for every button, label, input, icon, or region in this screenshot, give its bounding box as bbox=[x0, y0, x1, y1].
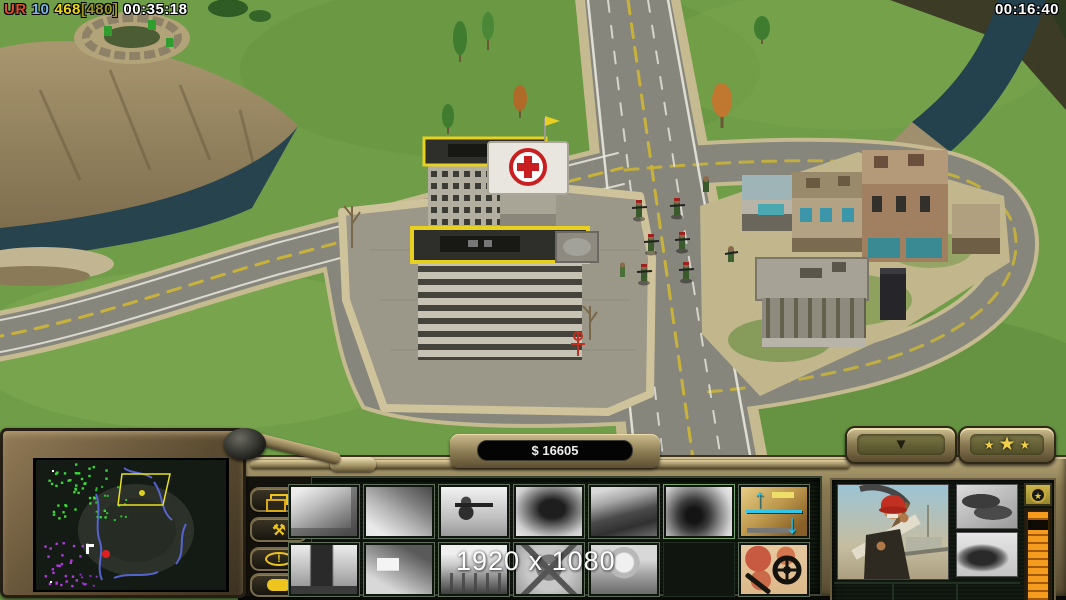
build-cell-explosion[interactable] bbox=[663, 484, 735, 539]
stacked-windows-icon bbox=[270, 494, 288, 505]
veterancy-emblem: ★ bbox=[1024, 483, 1052, 506]
minimap-camera-dot bbox=[139, 490, 145, 496]
crossed-tools-icon: ⚒ bbox=[272, 521, 285, 539]
game-screen: UR10468[480]00:35:18 00:16:40 bbox=[0, 0, 1066, 600]
money-display: $ 16605 bbox=[477, 440, 633, 461]
build-cell-supply-truck[interactable] bbox=[288, 542, 360, 597]
supply-cap: [480] bbox=[81, 1, 119, 18]
bunker-cave-thumbnail bbox=[516, 487, 582, 536]
money-tab: $ 16605 bbox=[450, 434, 660, 468]
supply-truck-thumbnail bbox=[291, 545, 357, 594]
panel-gridline bbox=[834, 582, 1020, 584]
star-icon: ★ bbox=[998, 433, 1015, 456]
hospital-front-tower[interactable] bbox=[412, 228, 598, 360]
star-icon: ★ bbox=[984, 438, 995, 452]
factory-thumbnail bbox=[591, 487, 657, 536]
command-bar: $ 16605 ▼ ★ ★ ★ ⚒ ! ↑ ↓ bbox=[0, 420, 1066, 600]
build-cell-factory[interactable] bbox=[588, 484, 660, 539]
supply-building-thumbnail bbox=[291, 487, 357, 536]
build-cell-map-scan[interactable] bbox=[738, 542, 810, 597]
helipad[interactable] bbox=[488, 142, 568, 235]
panel-gridline bbox=[892, 582, 894, 600]
explosion-smoke-thumbnail bbox=[666, 487, 732, 536]
rank-stars-button[interactable]: ★ ★ ★ bbox=[958, 426, 1056, 464]
civilian-building-far[interactable] bbox=[952, 204, 1000, 254]
match-timer: 00:16:40 bbox=[995, 1, 1059, 18]
build-cell-empty[interactable] bbox=[663, 542, 735, 597]
civilian-building-concrete[interactable] bbox=[756, 258, 868, 347]
up-arrow-icon: ↑ bbox=[753, 485, 767, 512]
construction-yard-thumbnail bbox=[366, 487, 432, 536]
chevron-down-icon: ▼ bbox=[894, 437, 909, 452]
build-cell-supply-building[interactable] bbox=[288, 484, 360, 539]
black-chimney bbox=[880, 268, 906, 320]
game-time: 00:35:18 bbox=[123, 1, 187, 18]
minimap-red-dot bbox=[102, 550, 110, 558]
build-cell-bunker-cave[interactable] bbox=[513, 484, 585, 539]
unit-count: 10 bbox=[32, 1, 50, 18]
supply-current: 468 bbox=[54, 1, 81, 18]
item-shoes[interactable] bbox=[956, 484, 1018, 529]
build-cell-raise-lower[interactable]: ↑ ↓ bbox=[738, 484, 810, 539]
walled-compound-thumbnail bbox=[366, 545, 432, 594]
civilian-building-tan[interactable] bbox=[792, 172, 870, 252]
scan-handle bbox=[745, 572, 772, 594]
resolution-overlay: 1920 x 1080 bbox=[456, 546, 616, 577]
build-cell-compound[interactable] bbox=[363, 542, 435, 597]
build-cell-construction-yard[interactable] bbox=[363, 484, 435, 539]
resource-stats: UR10468[480]00:35:18 bbox=[4, 1, 192, 18]
general-powers-button[interactable]: ▼ bbox=[845, 426, 957, 464]
map-scan-thumbnail bbox=[741, 545, 807, 594]
star-medal-icon: ★ bbox=[1030, 487, 1046, 503]
star-icon: ★ bbox=[1020, 438, 1031, 452]
build-cell-rpg-soldier[interactable] bbox=[438, 484, 510, 539]
raise-lower-building-thumbnail: ↑ ↓ bbox=[741, 487, 807, 536]
experience-bar-gap bbox=[1028, 520, 1048, 530]
faction-tag: UR bbox=[4, 1, 27, 18]
civilian-building-brown[interactable] bbox=[862, 150, 948, 262]
panel-gridline bbox=[956, 582, 958, 600]
minimap-knob bbox=[224, 428, 266, 460]
item-engraving[interactable] bbox=[956, 532, 1018, 577]
unit-portrait-worker[interactable] bbox=[837, 484, 949, 580]
experience-bar bbox=[1024, 508, 1052, 600]
rpg-soldier-thumbnail bbox=[441, 487, 507, 536]
scan-wheel-icon bbox=[769, 553, 805, 589]
selected-unit-panel: ★ bbox=[830, 478, 1056, 600]
minimap[interactable] bbox=[33, 458, 229, 592]
down-arrow-icon: ↓ bbox=[786, 511, 800, 538]
minimap-frame bbox=[0, 428, 246, 598]
stone-fort[interactable] bbox=[74, 12, 190, 64]
